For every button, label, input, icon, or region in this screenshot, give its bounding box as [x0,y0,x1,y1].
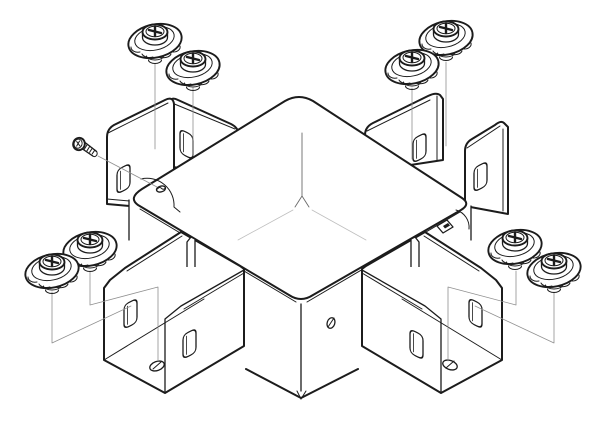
screw-pair-bottom-left [22,227,120,293]
bracket-plate-top-right-outer [465,122,508,214]
channel-far-wall-strip [187,237,195,267]
screw-pair-top-left [125,19,223,90]
exploded-view-drawing [0,0,606,432]
screw-pair-bottom-right [485,225,584,292]
channel-far-wall-strip [411,237,419,267]
machine-screw-left [71,136,100,157]
flanged-screw [163,46,223,90]
illustration-canvas [0,0,606,432]
screw-pair-top-right [382,16,476,89]
